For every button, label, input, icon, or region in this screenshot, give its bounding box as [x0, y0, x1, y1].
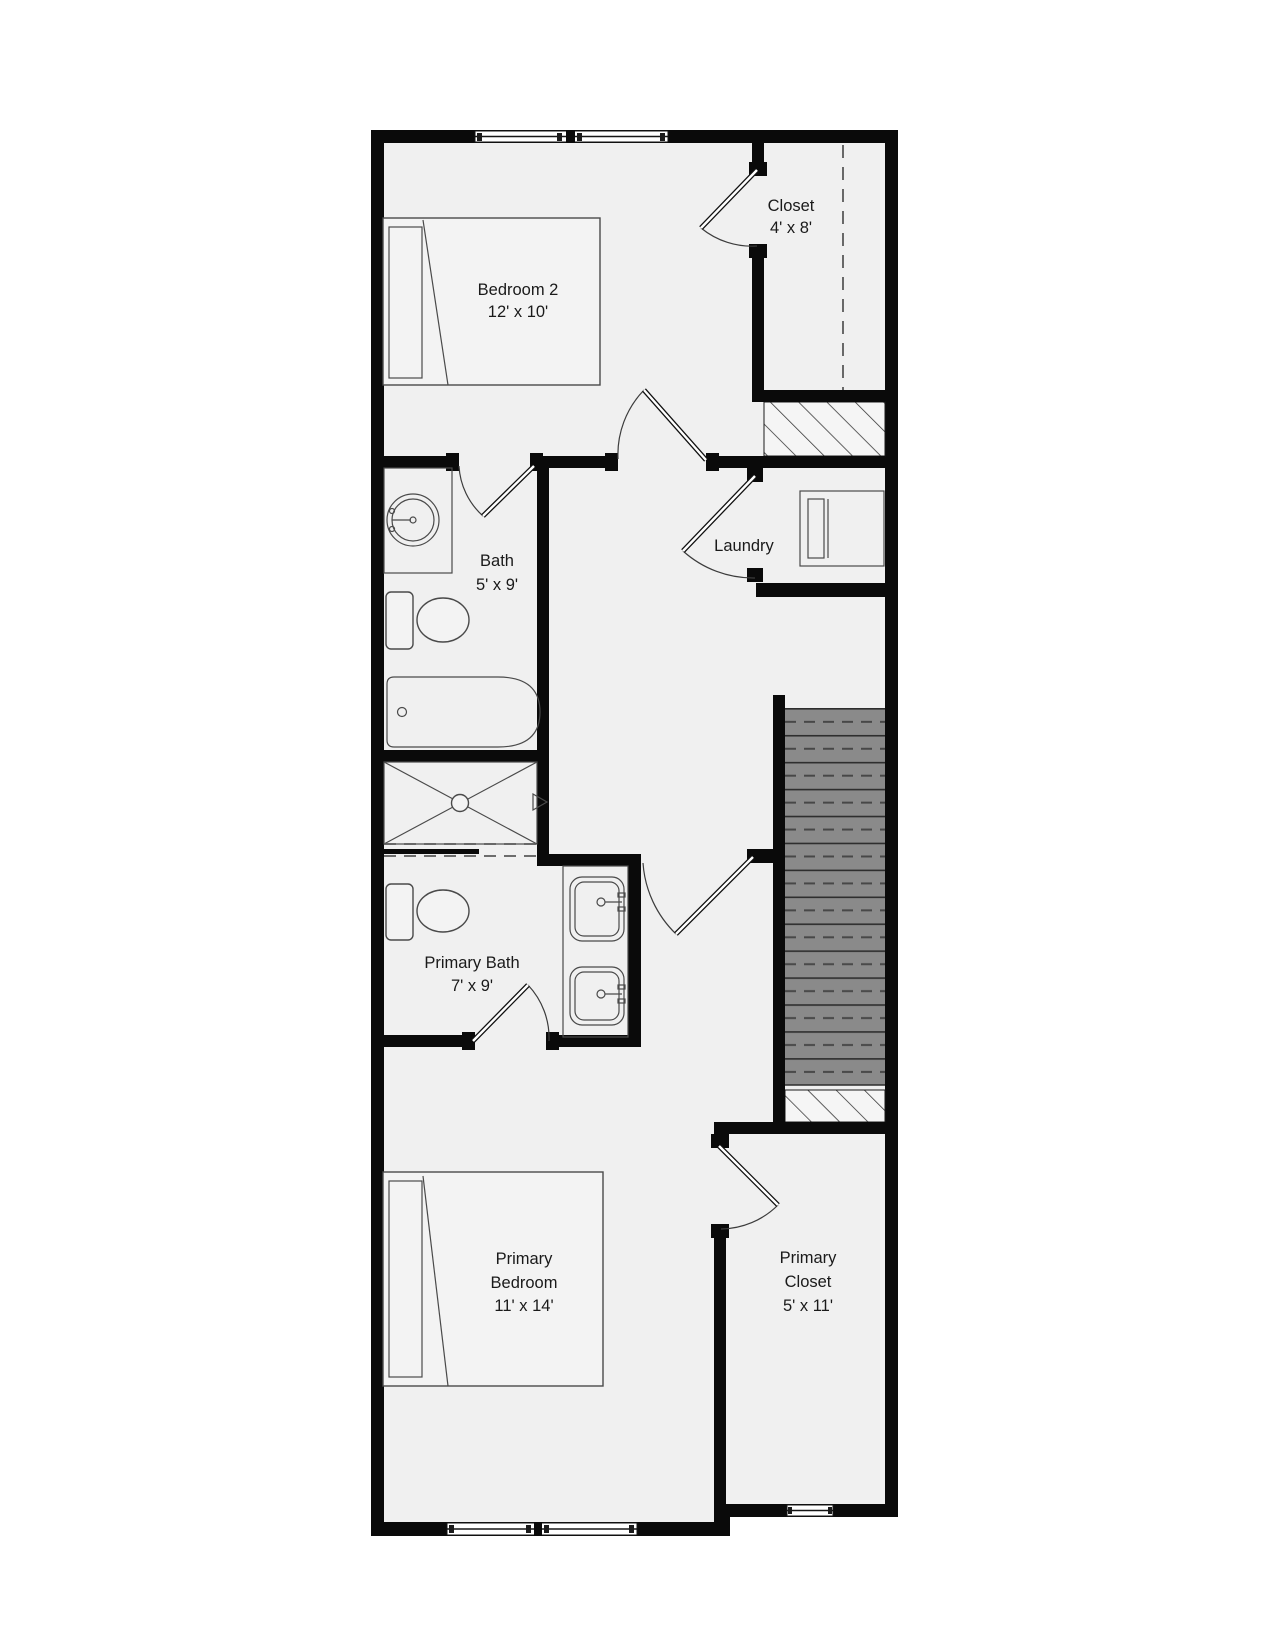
stair-treads	[785, 708, 885, 1085]
window-primary-closet-bottom	[787, 1505, 833, 1516]
closet-dims: 4' x 8'	[770, 219, 812, 237]
bath-label: Bath	[480, 552, 514, 570]
closet-bottom-wall	[764, 390, 885, 402]
hatch-below-closet	[764, 402, 885, 456]
primary-closet-left-wall	[714, 1238, 726, 1504]
window-bedroom2-top	[475, 130, 668, 143]
floor-plan: Bedroom 2 12' x 10' Closet 4' x 8' Bath …	[0, 0, 1275, 1650]
stairs	[773, 695, 885, 1130]
closet-label: Closet	[768, 197, 815, 215]
primary-bath-dims: 7' x 9'	[451, 977, 493, 995]
laundry-bottom-wall	[756, 583, 898, 597]
primary-closet-label-2: Closet	[785, 1273, 832, 1291]
vanity-right-wall	[628, 854, 641, 1047]
primary-closet-dims: 5' x 11'	[783, 1297, 833, 1315]
primary-closet-top-wall	[714, 1122, 898, 1134]
primary-bedroom-label-1: Primary	[496, 1250, 554, 1268]
primary-closet-label-1: Primary	[780, 1249, 838, 1267]
hatch-below-stairs	[785, 1090, 885, 1122]
tub-wall	[384, 750, 537, 762]
wall-right	[885, 130, 898, 1517]
wall-bottom-connector	[714, 1504, 730, 1536]
laundry-label: Laundry	[714, 537, 774, 555]
bedroom2-label: Bedroom 2	[478, 281, 559, 299]
stair-wall	[773, 695, 785, 1130]
bath-dims: 5' x 9'	[476, 576, 518, 594]
bedroom2-dims: 12' x 10'	[488, 303, 548, 321]
primary-bedroom-dims: 11' x 14'	[494, 1297, 553, 1315]
shower-half-wall	[384, 849, 479, 854]
shower-drain	[452, 795, 469, 812]
floor-plan-page: Bedroom 2 12' x 10' Closet 4' x 8' Bath …	[0, 0, 1275, 1650]
window-primary-bedroom-bottom	[447, 1522, 637, 1536]
primary-bath-label: Primary Bath	[424, 954, 519, 972]
bed-bedroom2	[383, 218, 600, 385]
primary-bedroom-label-2: Bedroom	[491, 1274, 558, 1292]
wall-left	[371, 130, 384, 1536]
